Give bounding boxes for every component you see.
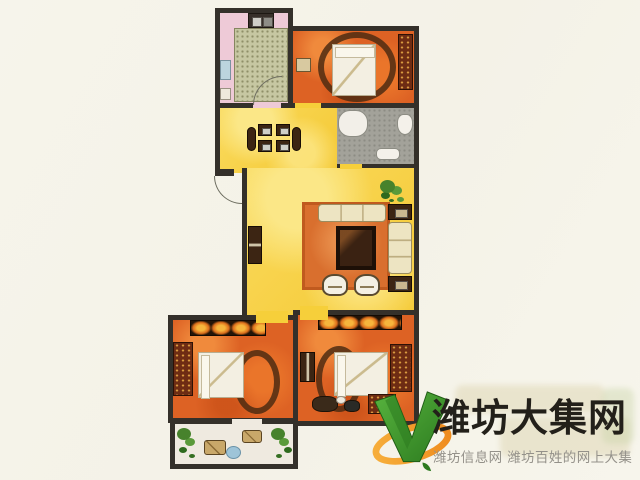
balcony-plant-icon bbox=[177, 428, 191, 440]
site-watermark: 潍坊大集网 潍坊信息网 潍坊百姓的网上大集 bbox=[368, 386, 640, 476]
balcony-plant-icon bbox=[271, 428, 285, 440]
double-bed bbox=[198, 352, 244, 398]
wardrobe bbox=[318, 315, 402, 330]
side-table bbox=[388, 204, 412, 220]
double-bed bbox=[332, 44, 376, 96]
floor-cushion bbox=[204, 440, 226, 455]
room-bathroom bbox=[332, 103, 419, 169]
dining-bench bbox=[292, 127, 301, 151]
dining-chair bbox=[258, 140, 272, 152]
room-dining bbox=[215, 103, 337, 173]
toilet bbox=[397, 114, 413, 135]
stove-counter-icon bbox=[248, 13, 274, 28]
sofa-back bbox=[318, 204, 386, 222]
floor-cushion bbox=[242, 430, 262, 443]
bedroom-sw-door-opening bbox=[256, 311, 288, 323]
armchair bbox=[322, 274, 348, 296]
dining-chair bbox=[276, 140, 290, 152]
room-living bbox=[242, 168, 419, 320]
dining-chair bbox=[258, 124, 272, 136]
balcony-door-opening bbox=[232, 419, 262, 424]
entry-wall-stub bbox=[215, 169, 234, 176]
room-balcony bbox=[170, 419, 298, 469]
coffee-table bbox=[336, 226, 376, 270]
screenshot-root: 潍坊大集网 潍坊信息网 潍坊百姓的网上大集 bbox=[0, 0, 640, 480]
bedroom-se-door-opening bbox=[300, 306, 328, 320]
bathtub bbox=[338, 110, 368, 137]
watermark-brand: 潍坊大集网 bbox=[432, 398, 638, 438]
sofa-chaise bbox=[388, 222, 412, 274]
floor-bag bbox=[344, 400, 360, 412]
dresser bbox=[173, 342, 193, 396]
sink bbox=[376, 148, 400, 160]
tea-table bbox=[226, 446, 241, 459]
hall-cabinet bbox=[248, 226, 262, 264]
bedroom-north-door-opening bbox=[295, 103, 321, 108]
side-table bbox=[388, 276, 412, 292]
dining-bench bbox=[247, 127, 256, 151]
bathroom-door-opening bbox=[340, 164, 362, 169]
dresser bbox=[398, 34, 413, 90]
dining-table-set bbox=[246, 120, 306, 162]
armchair bbox=[354, 274, 380, 296]
wardrobe bbox=[190, 320, 266, 336]
nightstand bbox=[296, 58, 311, 72]
kitchen-cabinet bbox=[220, 88, 231, 100]
room-bedroom-north bbox=[288, 26, 419, 108]
room-bedroom-southwest bbox=[168, 315, 298, 423]
entry-door-arc bbox=[214, 176, 242, 204]
potted-plant-icon bbox=[380, 180, 395, 193]
dresser bbox=[390, 344, 412, 392]
nightstand bbox=[300, 352, 315, 382]
watermark-tagline: 潍坊信息网 潍坊百姓的网上大集 bbox=[433, 446, 639, 466]
dining-chair bbox=[276, 124, 290, 136]
floor-bag bbox=[312, 396, 338, 412]
kitchen-shelf bbox=[220, 60, 231, 80]
